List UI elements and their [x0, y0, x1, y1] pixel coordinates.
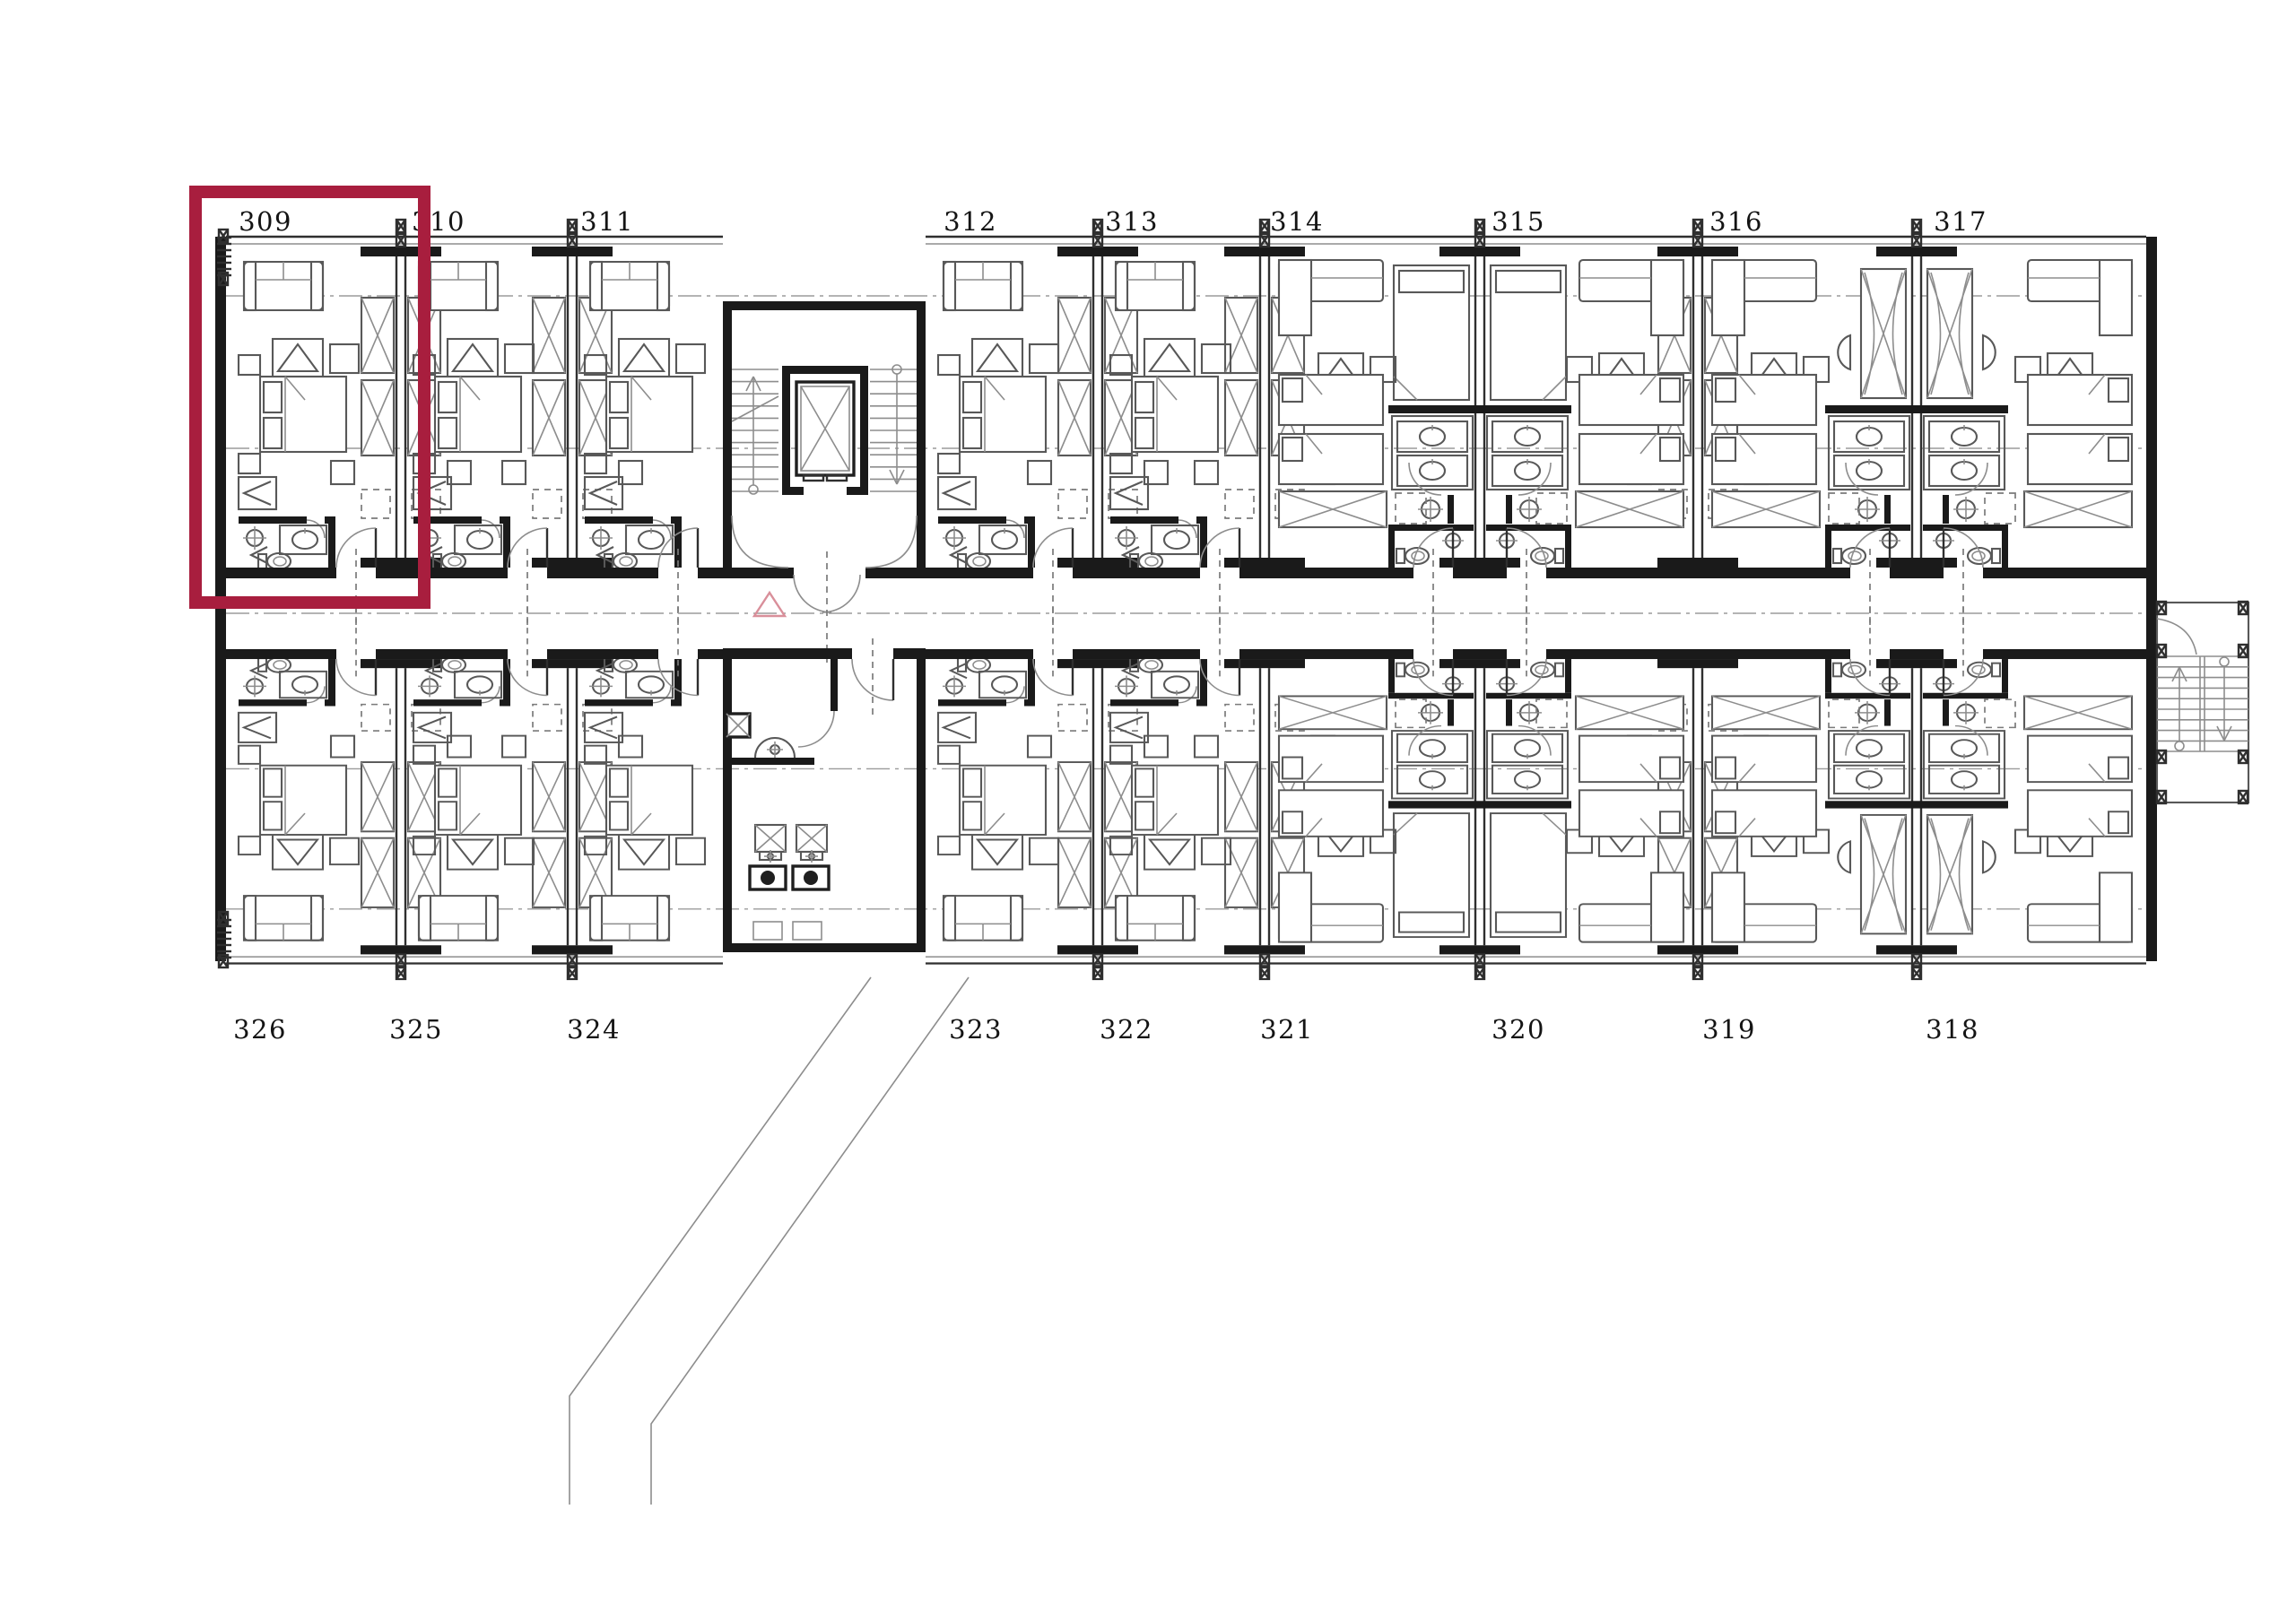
exterior-staircase [2157, 602, 2248, 803]
room-label-316: 316 [1709, 206, 1763, 237]
floor-plan: 3093103113123133143153163173183193203213… [0, 0, 2296, 1622]
room-label-322: 322 [1100, 1014, 1153, 1045]
room-326[interactable] [239, 657, 359, 941]
room-323[interactable] [938, 657, 1058, 941]
room-316[interactable] [1712, 260, 1859, 527]
entrance-marker-icon [754, 593, 785, 616]
room-label-313: 313 [1105, 206, 1159, 237]
room-label-321: 321 [1260, 1014, 1314, 1045]
room-319[interactable] [1712, 696, 1859, 941]
room-label-324: 324 [567, 1014, 621, 1045]
room-317[interactable] [1985, 260, 2132, 527]
room-label-318: 318 [1926, 1014, 1979, 1045]
room-label-319: 319 [1702, 1014, 1756, 1045]
room-label-311: 311 [580, 206, 634, 237]
room-309[interactable] [239, 262, 359, 569]
room-label-309: 309 [239, 206, 292, 237]
room-label-320: 320 [1492, 1014, 1545, 1045]
floor-plan-page: 3093103113123133143153163173183193203213… [0, 0, 2296, 1622]
room-label-315: 315 [1492, 206, 1545, 237]
room-label-314: 314 [1270, 206, 1324, 237]
room-label-325: 325 [389, 1014, 443, 1045]
room-label-326: 326 [233, 1014, 287, 1045]
room-312[interactable] [938, 262, 1058, 569]
room-label-312: 312 [944, 206, 997, 237]
north-wing [226, 220, 2146, 628]
service-room [723, 638, 926, 952]
south-wing [226, 603, 2146, 979]
room-318[interactable] [1985, 696, 2132, 941]
room-label-317: 317 [1934, 206, 1987, 237]
room-label-323: 323 [949, 1014, 1003, 1045]
entrance-walkway [570, 977, 969, 1505]
